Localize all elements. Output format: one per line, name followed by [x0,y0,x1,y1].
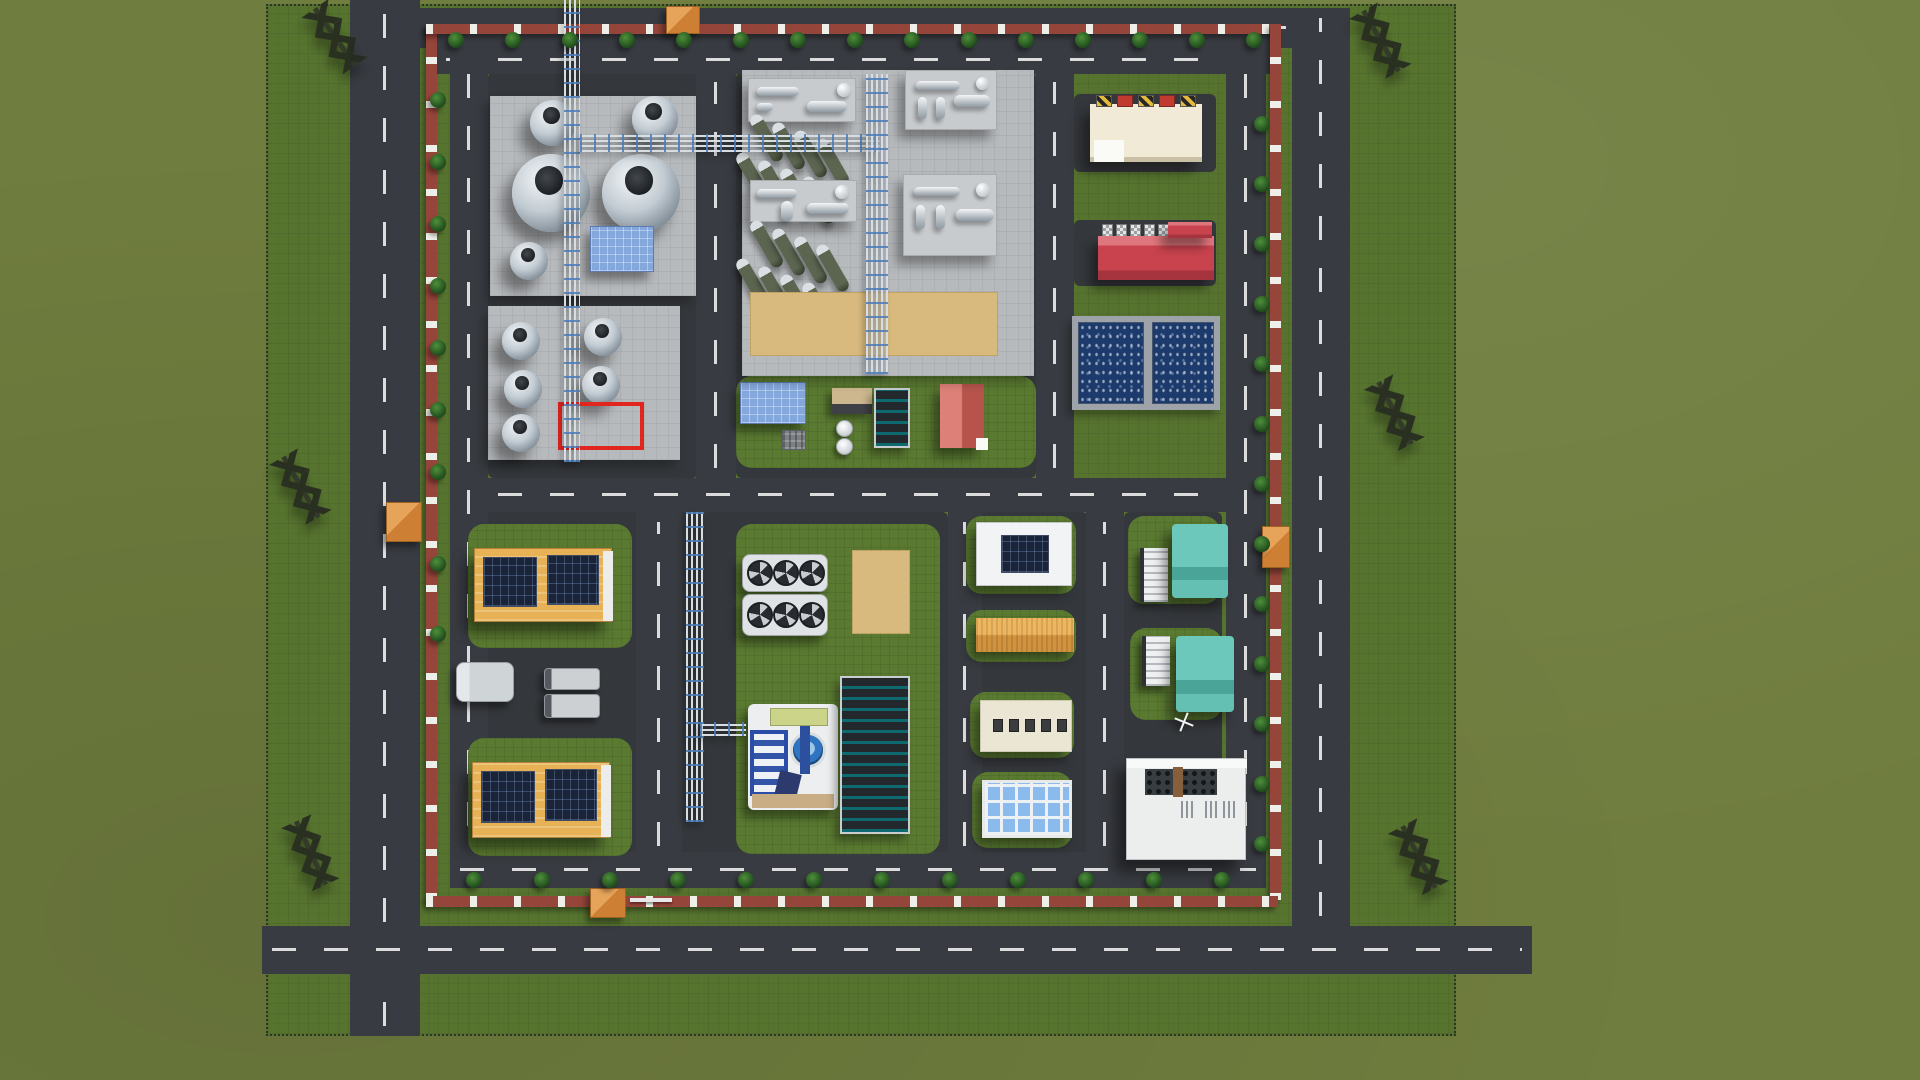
tree [1254,296,1270,312]
vertical-vessel [916,205,925,229]
south-pipe-rack [686,512,704,822]
plant-pipe-rack [866,74,888,374]
cooling-unit-south[interactable] [1142,636,1170,686]
process-unit-roof-ne[interactable] [905,70,997,130]
sphere-tank-pad-south [488,306,680,460]
tree [430,216,446,232]
tree [1254,596,1270,612]
white-solar-building[interactable] [976,522,1072,586]
pallet-stack[interactable] [782,430,806,450]
cooling-fan [799,560,825,586]
aerial-scene-viewport [0,0,1920,1080]
yellow-warehouse-south[interactable] [472,762,610,838]
vertical-vessel [918,97,927,119]
tank-dome [976,77,989,90]
roof-vent [1057,719,1067,732]
tree [448,32,464,48]
horizontal-vessel [914,187,960,196]
orange-gable-building[interactable] [976,618,1074,652]
loading-dock [603,551,613,621]
loading-dock [601,765,611,837]
settling-lanes-panel[interactable] [840,676,910,834]
tree [466,872,482,888]
warehouse-island-north [468,524,632,648]
tank-dome [835,185,849,199]
facade-louvers [1181,801,1195,818]
rooftop-solar-array [545,769,597,821]
tank-dome [976,183,990,197]
red-roof-vent [1159,95,1175,107]
tree [430,626,446,642]
tree [430,278,446,294]
avenue-b [1036,72,1074,478]
blue-warehouse[interactable] [740,382,806,424]
rooftop-solar-array [483,557,537,607]
sand-pad [852,550,910,634]
tree [430,154,446,170]
tree [1254,776,1270,792]
south-gate-barrier[interactable] [630,898,672,902]
building-annex [1094,140,1124,162]
teal-arched-hall-north[interactable] [1172,524,1228,598]
horizontal-vessel [757,189,797,198]
tree [1254,236,1270,252]
rooftop-solar-array [547,555,599,605]
tree [562,32,578,48]
cooling-fan [773,602,799,628]
vertical-vessel [781,201,793,221]
red-hall-wing [1168,222,1212,238]
horizontal-vessel [807,203,849,214]
vented-utility-building[interactable] [980,700,1072,752]
utility-island [736,524,940,854]
roof-parapet [1127,759,1247,768]
tree [670,872,686,888]
horizontal-vessel [956,209,994,221]
red-gable-shed[interactable] [940,384,984,448]
tank-dome [837,83,851,97]
tree [1254,416,1270,432]
rooftop-solar-panel [1001,535,1049,573]
horizontal-vessel [757,87,799,96]
basin-frame [1072,316,1220,410]
tree [676,32,692,48]
tree [602,872,618,888]
vertical-vessel [936,97,945,119]
solar-collector-panel[interactable] [874,388,910,448]
cooling-fan [747,560,773,586]
hazard-roof-vent [1096,95,1112,107]
tree [619,32,635,48]
tree [430,464,446,480]
storage-tank-round[interactable] [836,438,853,455]
cooling-fan [773,560,799,586]
cream-plant-building[interactable] [1090,104,1202,162]
greenhouse-glass-roof[interactable] [982,780,1072,838]
horizontal-vessel [807,101,847,112]
tree [733,32,749,48]
process-unit-roof-se[interactable] [903,174,997,256]
facade-louvers [1205,801,1217,818]
tree [1254,176,1270,192]
tree [1132,32,1148,48]
avenue-d [1086,512,1124,856]
tree [1075,32,1091,48]
tree [1078,872,1094,888]
tree [847,32,863,48]
storage-tank-round[interactable] [836,420,853,437]
tree [1246,32,1262,48]
shed-annex [976,438,988,450]
horizontal-vessel [954,95,990,107]
semi-trailer[interactable] [544,694,600,718]
tree [904,32,920,48]
tree [1018,32,1034,48]
public-road-east [1292,8,1350,926]
tan-storage-building[interactable] [832,388,872,412]
rooftop-solar-array [481,771,535,823]
avenue-a-south [636,512,682,856]
tree [1146,872,1162,888]
vertical-vessel [936,205,945,229]
tree [1214,872,1230,888]
red-roof-vent [1117,95,1133,107]
tree [430,340,446,356]
horizontal-vessel [757,103,773,111]
tree [430,402,446,418]
tree [1254,836,1270,852]
lpg-sphere-mini[interactable] [510,242,548,280]
tree [961,32,977,48]
tree [790,32,806,48]
lpg-sphere-large[interactable] [602,154,680,232]
tan-building-awning [832,404,872,414]
tree [430,92,446,108]
tree [1254,356,1270,372]
office-control-building[interactable] [1126,758,1246,860]
sphere-tank-pad-north [490,96,696,296]
tree [874,872,890,888]
lpg-sphere-mini[interactable] [504,370,542,408]
tree [1254,656,1270,672]
west-gatehouse[interactable] [386,502,422,542]
lpg-sphere-mini[interactable] [502,414,540,452]
process-unit-roof-sw[interactable] [750,180,857,222]
rooftop-walkway [1173,767,1183,797]
warehouse-island-south [468,738,632,856]
boundary-wall-south [426,896,1278,907]
boundary-wall-east [1270,24,1281,900]
pipe-rack-east-west [580,134,880,152]
cooling-fan [747,602,773,628]
tank-farm-shed[interactable] [590,226,654,272]
yellow-warehouse-north[interactable] [474,548,612,622]
roof-vent [1025,719,1035,732]
teal-arched-hall-south[interactable] [1176,636,1234,712]
tree [505,32,521,48]
hazard-roof-vent [1138,95,1154,107]
mid-road [488,478,1226,512]
roof-vent [993,719,1003,732]
tree [1254,536,1270,552]
tree [738,872,754,888]
pipeline-inlet-north [564,0,580,462]
box-truck[interactable] [456,662,514,702]
semi-trailer[interactable] [544,668,600,690]
timber-deck [752,794,834,808]
roof-vent [1041,719,1051,732]
cooling-fan [799,602,825,628]
tree [942,872,958,888]
lpg-sphere-mini[interactable] [502,322,540,360]
clarifier-bridge [800,726,810,774]
north-gatehouse[interactable] [666,6,700,34]
horizontal-vessel [916,81,960,90]
south-pipe-stub [700,722,746,736]
air-cooler-bank-south[interactable] [742,594,828,636]
south-gatehouse[interactable] [590,888,626,918]
water-treatment-unit[interactable] [748,704,838,810]
tree [1189,32,1205,48]
roof-vent [1009,719,1019,732]
tree [1254,476,1270,492]
tree [534,872,550,888]
process-plant-pad [742,70,1034,376]
red-hip-roof-hall[interactable] [1098,236,1214,280]
public-road-south [262,926,1532,974]
aeration-basin-east[interactable] [1152,322,1214,404]
tree [1254,716,1270,732]
lpg-sphere-mini[interactable] [582,366,620,404]
center-strip-island [736,376,1036,468]
hazard-roof-vent [1180,95,1196,107]
avenue-a-north [696,72,736,478]
aeration-basin-west[interactable] [1078,322,1144,404]
cooling-unit-north[interactable] [1140,548,1168,602]
tree [1010,872,1026,888]
tree [1254,116,1270,132]
lpg-sphere-mini[interactable] [584,318,622,356]
air-cooler-bank-north[interactable] [742,554,828,592]
tree [806,872,822,888]
treatment-skid [770,708,828,726]
tree [430,556,446,572]
facade-louvers [1223,801,1237,818]
